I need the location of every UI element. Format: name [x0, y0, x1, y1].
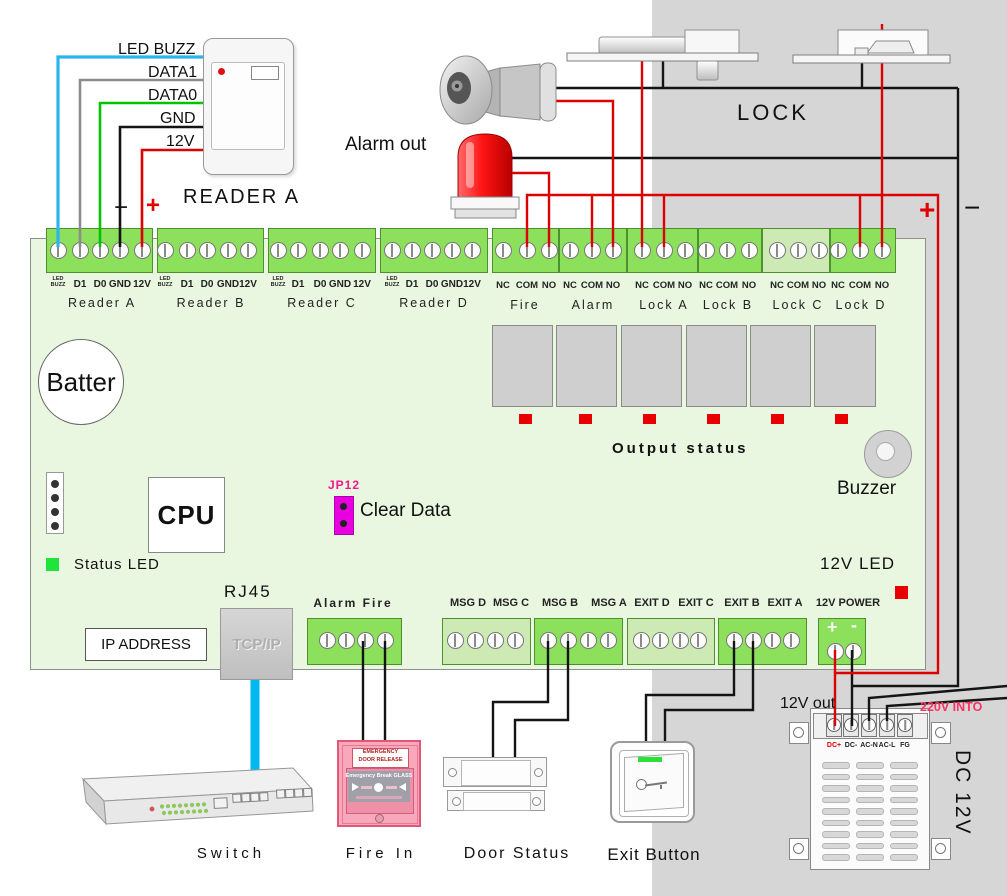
- pin-label: COM: [849, 280, 871, 291]
- rj45-jack: TCP/IP: [220, 608, 293, 680]
- pin: [51, 494, 59, 502]
- psu-screw: [827, 718, 841, 732]
- block-name: Reader D: [399, 296, 469, 310]
- wire-label-12v: 12V: [166, 133, 194, 151]
- terminal-screw: [652, 632, 669, 649]
- terminal-screw: [157, 242, 174, 259]
- psu-pin-label: DC-: [845, 742, 857, 749]
- terminal-screw: [179, 242, 196, 259]
- break-glass-button: [374, 783, 383, 792]
- block-name: Reader B: [177, 296, 246, 310]
- block-name: Lock C: [773, 298, 824, 312]
- block-name: Fire: [510, 298, 540, 312]
- jp12-jumper: [334, 496, 354, 535]
- sign-line1: EMERGENCY: [353, 749, 408, 757]
- terminal-screw: [672, 632, 689, 649]
- relay: [686, 325, 747, 407]
- key-icon: [660, 785, 662, 789]
- lock-label: LOCK: [737, 100, 809, 126]
- reader-wires: [58, 57, 205, 247]
- pin-label: D0: [314, 279, 327, 290]
- terminal-screw: [719, 242, 736, 259]
- terminal-screw: [540, 632, 557, 649]
- terminal-screw: [134, 242, 151, 259]
- pin-label: NO: [812, 280, 826, 291]
- terminal-screw: [541, 242, 558, 259]
- terminal-screw: [112, 242, 129, 259]
- wire-label-gnd: GND: [160, 110, 196, 128]
- arrow-right-icon: [352, 783, 359, 791]
- break-glass-band-label: Emergency Break GLASS: [346, 773, 413, 779]
- status-led: [46, 558, 59, 571]
- pin-label: D1: [292, 279, 305, 290]
- jumper-pin: [340, 503, 347, 510]
- terminal-screw: [404, 242, 421, 259]
- door-contact-top-body: [461, 760, 531, 786]
- pin-label: NC: [699, 280, 713, 291]
- terminal-screw: [560, 632, 577, 649]
- terminal-screw: [444, 242, 461, 259]
- terminal-screw: [605, 242, 622, 259]
- terminal-screw: [519, 242, 536, 259]
- exit-c-label: EXIT C: [678, 597, 713, 609]
- pin-label: LED BUZZ: [381, 276, 403, 288]
- jumper-pin: [340, 520, 347, 527]
- pin-label: D0: [426, 279, 439, 290]
- terminal-screw: [319, 632, 336, 649]
- pin-label: D1: [406, 279, 419, 290]
- terminal-screw: [769, 242, 786, 259]
- psu-pin-label: AC-L: [879, 742, 896, 749]
- terminal-screw: [874, 242, 891, 259]
- terminal-screw: [384, 242, 401, 259]
- siren-speaker: [440, 56, 556, 124]
- terminal-screw: [827, 643, 844, 660]
- cpu-chip: CPU: [148, 477, 225, 553]
- pin-label: NC: [496, 280, 510, 291]
- terminal-screw: [745, 632, 762, 649]
- exit-d-label: EXIT D: [634, 597, 669, 609]
- terminal-screw: [633, 632, 650, 649]
- wire-label-led-buzz: LED BUZZ: [118, 41, 195, 59]
- output-status-led: [835, 414, 848, 424]
- pin-label: COM: [716, 280, 738, 291]
- sign-line2: DOOR RELEASE: [353, 757, 408, 765]
- pin-label: NO: [678, 280, 692, 291]
- pin-label: NC: [831, 280, 845, 291]
- dc-12v-label: DC 12V: [950, 750, 974, 836]
- pin-label: GND: [217, 279, 239, 290]
- 12v-out-label: 12V out: [780, 695, 835, 713]
- pin-label: 12V: [133, 279, 151, 290]
- strobe-light: [451, 134, 519, 218]
- arrow-left-icon: [399, 783, 406, 791]
- terminal-screw: [290, 242, 307, 259]
- relay: [814, 325, 876, 407]
- terminal-screw: [783, 632, 800, 649]
- pin: [51, 508, 59, 516]
- terminal-screw: [852, 242, 869, 259]
- psu-screw: [880, 718, 894, 732]
- output-status-led: [707, 414, 720, 424]
- terminal-screw: [562, 242, 579, 259]
- reader-led-icon: [218, 68, 225, 75]
- relay: [492, 325, 553, 407]
- wire-label-data1: DATA1: [148, 64, 197, 82]
- terminal-screw: [240, 242, 257, 259]
- terminal-screw: [377, 632, 394, 649]
- clear-data-label: Clear Data: [360, 500, 451, 522]
- terminal-screw: [741, 242, 758, 259]
- terminal-screw: [811, 242, 828, 259]
- jp12-label: JP12: [328, 478, 360, 492]
- pin-label: NC: [563, 280, 577, 291]
- psu-pin-label: DC+: [827, 742, 841, 749]
- terminal-screw: [580, 632, 597, 649]
- relay: [750, 325, 811, 407]
- terminal-screw: [312, 242, 329, 259]
- buzzer-label: Buzzer: [837, 478, 896, 500]
- terminal-screw: [50, 242, 67, 259]
- pin-label: NO: [742, 280, 756, 291]
- exit-button-label: Exit Button: [607, 845, 700, 865]
- pin-label: 12V: [353, 279, 371, 290]
- pin-label: NC: [770, 280, 784, 291]
- output-status-led: [579, 414, 592, 424]
- psu-screw: [844, 718, 858, 732]
- block-name: Alarm: [572, 298, 615, 312]
- wire-siren-red: [546, 101, 613, 247]
- terminal-screw: [332, 242, 349, 259]
- pin-label: NO: [875, 280, 889, 291]
- pin-label: D0: [94, 279, 107, 290]
- output-status-led: [643, 414, 656, 424]
- pin: [51, 480, 59, 488]
- output-status-led: [771, 414, 784, 424]
- break-glass-sign: EMERGENCY DOOR RELEASE: [352, 748, 409, 768]
- network-switch: [83, 768, 313, 824]
- buzzer-hole: [876, 442, 895, 461]
- pin-label: 12V: [239, 279, 257, 290]
- relay: [621, 325, 682, 407]
- pin-label: NC: [635, 280, 649, 291]
- 220v-into-label: 220V INTO: [920, 700, 982, 714]
- power-plus-mark: +: [827, 617, 838, 638]
- terminal-screw: [199, 242, 216, 259]
- exit-button-led: [638, 757, 662, 762]
- output-status-label: Output status: [612, 440, 749, 457]
- terminal-screw: [790, 242, 807, 259]
- terminal-screw: [634, 242, 651, 259]
- screw-icon: [375, 814, 384, 823]
- ip-address-box: IP ADDRESS: [85, 628, 207, 661]
- terminal-screw: [424, 242, 441, 259]
- power-minus-mark: -: [851, 615, 857, 636]
- wire-data1: [80, 80, 205, 247]
- terminal-screw: [845, 643, 862, 660]
- terminal-screw: [270, 242, 287, 259]
- pin-label: 12V: [463, 279, 481, 290]
- block-name: Lock B: [703, 298, 753, 312]
- exit-b-label: EXIT B: [724, 597, 759, 609]
- exit-a-label: EXIT A: [767, 597, 802, 609]
- lock-minus-mark: −: [964, 192, 980, 224]
- pin-label: NO: [606, 280, 620, 291]
- pin-label: COM: [581, 280, 603, 291]
- terminal-screw: [92, 242, 109, 259]
- pin-label: D1: [74, 279, 87, 290]
- terminal-screw: [357, 632, 374, 649]
- msg-b-label: MSG B: [542, 597, 578, 609]
- relay: [556, 325, 617, 407]
- pin-header: [46, 472, 64, 534]
- terminal-screw: [72, 242, 89, 259]
- block-name: Lock A: [639, 298, 689, 312]
- terminal-screw: [354, 242, 371, 259]
- switch-label: Switch: [197, 845, 265, 862]
- terminal-screw: [656, 242, 673, 259]
- pin-label: NO: [542, 280, 556, 291]
- rj45-label: RJ45: [224, 582, 272, 602]
- terminal-screw: [495, 242, 512, 259]
- msg-d-label: MSG D: [450, 597, 486, 609]
- pin-label: D1: [181, 279, 194, 290]
- fire-in-label: Fire In: [346, 845, 417, 862]
- block-name: Reader A: [68, 296, 136, 310]
- pin-label: GND: [329, 279, 351, 290]
- pin-label: GND: [441, 279, 463, 290]
- 12v-power-label: 12V POWER: [816, 597, 880, 609]
- terminal-screw: [464, 242, 481, 259]
- pin-label: GND: [109, 279, 131, 290]
- terminal-screw: [507, 632, 524, 649]
- battery-holder: Batter: [38, 339, 124, 425]
- lock-plus-mark: +: [919, 194, 935, 226]
- pin-label: LED BUZZ: [267, 276, 289, 288]
- wire-led-buzz: [58, 57, 205, 247]
- psu-screw: [862, 718, 876, 732]
- terminal-screw: [690, 632, 707, 649]
- pin-label: COM: [653, 280, 675, 291]
- reader-a-title: READER A: [183, 186, 300, 209]
- block-name: Reader C: [287, 296, 357, 310]
- alarm-fire-label: Alarm Fire: [313, 596, 392, 610]
- pin-label: LED BUZZ: [47, 276, 69, 288]
- terminal-screw: [467, 632, 484, 649]
- psu-pin-label: FG: [900, 742, 910, 749]
- reader-plus-mark: +: [146, 192, 160, 220]
- status-led-label: Status LED: [74, 556, 160, 573]
- reader-window: [251, 66, 279, 80]
- terminal-screw: [677, 242, 694, 259]
- terminal-screw: [698, 242, 715, 259]
- door-contact-magnet-body: [463, 792, 531, 811]
- pin-label: COM: [787, 280, 809, 291]
- terminal-screw: [830, 242, 847, 259]
- msg-c-label: MSG C: [493, 597, 529, 609]
- reader-minus-mark: −: [114, 194, 128, 222]
- psu-screw: [898, 718, 912, 732]
- terminal-screw: [220, 242, 237, 259]
- door-status-label: Door Status: [464, 845, 570, 863]
- 12v-led-label: 12V LED: [820, 554, 895, 574]
- terminal-screw: [487, 632, 504, 649]
- terminal-screw: [600, 632, 617, 649]
- pin-label: D0: [201, 279, 214, 290]
- alarm-out-label: Alarm out: [345, 134, 426, 156]
- msg-a-label: MSG A: [591, 597, 627, 609]
- terminal-screw: [764, 632, 781, 649]
- terminal-screw: [338, 632, 355, 649]
- pin: [51, 522, 59, 530]
- terminal-screw: [726, 632, 743, 649]
- terminal-screw: [584, 242, 601, 259]
- pin-label: LED BUZZ: [154, 276, 176, 288]
- output-status-led: [519, 414, 532, 424]
- block-name: Lock D: [836, 298, 887, 312]
- 12v-led: [895, 586, 908, 599]
- psu-pin-label: AC-N: [860, 742, 878, 749]
- pin-label: COM: [516, 280, 538, 291]
- terminal-screw: [447, 632, 464, 649]
- wiring-diagram: LED BUZZ D1 D0 GND 12V LED BUZZ D1 D0 GN…: [0, 0, 1007, 896]
- wire-label-data0: DATA0: [148, 87, 197, 105]
